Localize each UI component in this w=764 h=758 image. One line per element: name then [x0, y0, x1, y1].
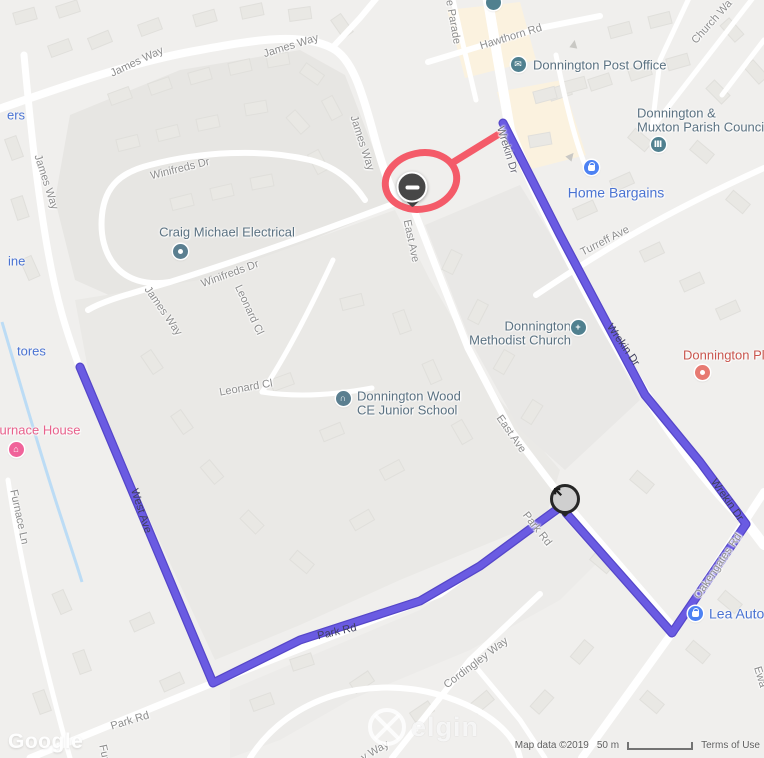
turn-direction-marker[interactable]	[550, 484, 580, 514]
home-bargains-pin[interactable]	[584, 160, 599, 175]
map-canvas[interactable]: James WayJames WayJames WayJames WayJame…	[0, 0, 764, 758]
junior-school-pin[interactable]: ∩	[336, 391, 351, 406]
furnace-house-pin[interactable]: ⌂	[9, 442, 24, 457]
dot-icon	[178, 249, 183, 254]
cap-icon: ∩	[340, 394, 347, 403]
map-data-credit: Map data ©2019	[515, 740, 589, 751]
attribution-bar: Map data ©2019 50 m Terms of Use	[507, 740, 760, 751]
turn-arrow-icon	[550, 484, 580, 514]
elgin-watermark: elgin	[368, 708, 479, 746]
methodist-church-pin[interactable]: +	[571, 320, 586, 335]
envelope-icon: ✉	[514, 60, 522, 69]
bag-icon	[692, 611, 699, 617]
one-way-arrow-icon	[569, 39, 578, 48]
bank-icon: Ⅲ	[654, 140, 663, 149]
lea-autos-pin[interactable]	[688, 606, 703, 621]
scale-label: 50 m	[597, 740, 619, 751]
google-logo[interactable]: Google	[8, 730, 83, 754]
no-entry-icon	[397, 172, 428, 203]
bag-icon	[588, 165, 595, 171]
scale-bar	[627, 742, 693, 750]
dot-icon	[700, 370, 705, 375]
map-base-layer	[0, 0, 764, 758]
parish-council-pin[interactable]: Ⅲ	[651, 137, 666, 152]
bed-icon: ⌂	[13, 445, 18, 454]
post-office-pin[interactable]: ✉	[511, 57, 526, 72]
cross-icon: +	[575, 323, 580, 332]
donnington-pl-pin[interactable]	[695, 365, 710, 380]
road-closed-marker[interactable]	[397, 172, 428, 203]
elgin-logo-icon	[368, 708, 406, 746]
terms-of-use-link[interactable]: Terms of Use	[701, 740, 760, 751]
top-cut-pin-pin[interactable]	[486, 0, 501, 10]
craig-electrical-pin[interactable]	[173, 244, 188, 259]
